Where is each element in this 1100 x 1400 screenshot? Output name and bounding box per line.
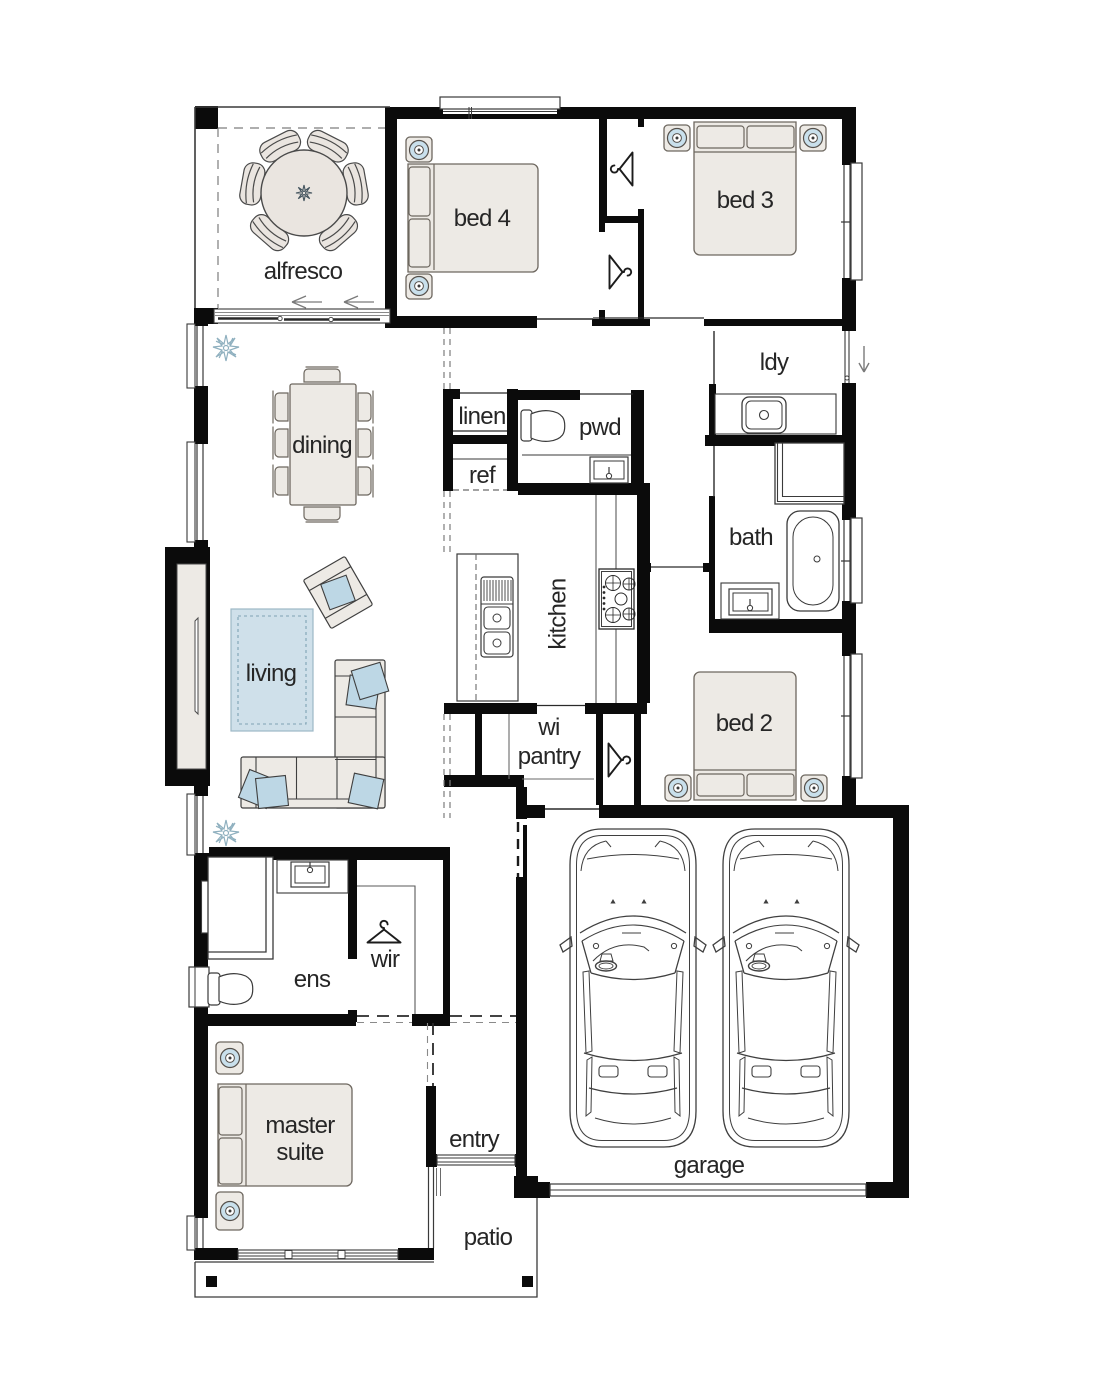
svg-text:garage: garage <box>674 1152 745 1179</box>
svg-text:pwd: pwd <box>579 414 621 441</box>
svg-text:kitchen: kitchen <box>545 578 572 649</box>
svg-text:dining: dining <box>292 432 352 459</box>
svg-text:suite: suite <box>276 1139 324 1166</box>
svg-text:wir: wir <box>370 946 400 973</box>
svg-text:bath: bath <box>729 524 773 551</box>
svg-text:wi: wi <box>537 714 559 741</box>
svg-text:ldy: ldy <box>760 349 789 376</box>
svg-text:master: master <box>265 1112 335 1139</box>
svg-text:alfresco: alfresco <box>264 258 343 285</box>
svg-text:pantry: pantry <box>518 743 581 770</box>
svg-text:linen: linen <box>458 403 505 430</box>
svg-text:ens: ens <box>294 966 331 993</box>
svg-text:living: living <box>246 660 297 687</box>
svg-text:ref: ref <box>469 462 496 489</box>
svg-text:bed 4: bed 4 <box>454 205 511 232</box>
svg-text:patio: patio <box>464 1224 513 1251</box>
svg-text:entry: entry <box>449 1126 500 1153</box>
svg-text:bed 3: bed 3 <box>717 187 774 214</box>
svg-text:bed 2: bed 2 <box>716 710 773 737</box>
